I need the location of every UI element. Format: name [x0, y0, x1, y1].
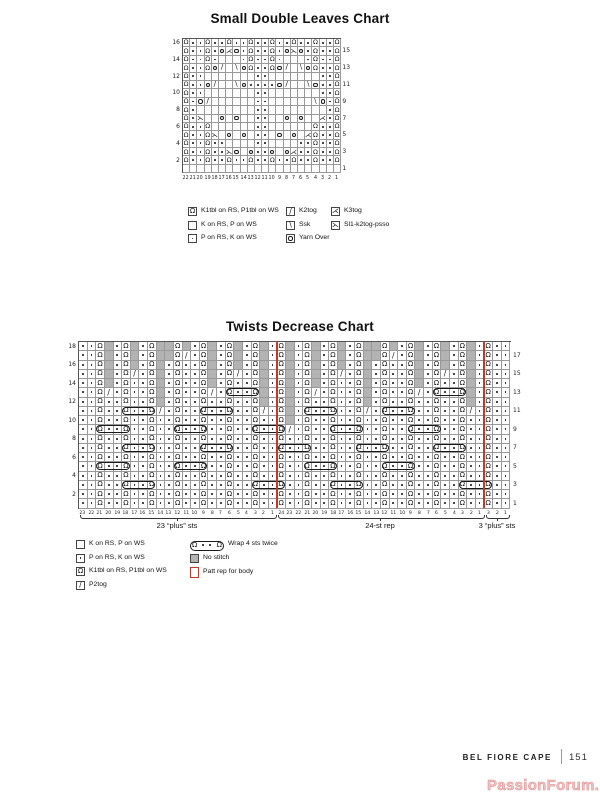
purl-dot-symbol [323, 364, 325, 366]
purl-dot-symbol [246, 456, 248, 458]
purl-dot-symbol [246, 502, 248, 504]
yarn-over-symbol [242, 133, 246, 137]
k1tbl-symbol: Ω [184, 81, 189, 87]
purl-dot-symbol [367, 438, 369, 440]
pattern-repeat-line [276, 341, 278, 508]
chart-cell [255, 148, 262, 156]
column-number: 19 [204, 176, 211, 181]
column-number: 5 [304, 176, 311, 181]
legend-item: \Ssk [286, 221, 310, 230]
chart-cell [219, 165, 226, 173]
purl-dot-symbol [211, 493, 213, 495]
chart-cell [212, 165, 219, 173]
k1tbl-symbol: Ω [201, 454, 206, 461]
chart-cell [372, 453, 381, 462]
purl-dot-symbol [496, 493, 498, 495]
chart-cell: Ω [433, 407, 442, 416]
wrap-4-sts-symbol [330, 481, 363, 489]
chart-cell [217, 342, 226, 351]
chart-cell [441, 379, 450, 388]
yarn-over-symbol [277, 83, 281, 87]
purl-dot-symbol [323, 345, 325, 347]
chart-cell: Ω [303, 499, 312, 508]
purl-dot-symbol [479, 419, 481, 421]
k1tbl-symbol: Ω [175, 343, 180, 350]
purl-dot-symbol [479, 345, 481, 347]
chart-cell [441, 425, 450, 434]
legend-label: P2tog [89, 582, 107, 589]
k1tbl-symbol: Ω [175, 500, 180, 507]
legend-label: Ssk [299, 222, 310, 229]
chart-cell: Ω [200, 388, 209, 397]
chart-cell: \ [312, 98, 319, 106]
purl-dot-symbol [322, 134, 324, 136]
k1tbl-symbol: Ω [149, 398, 154, 405]
chart-cell [286, 416, 295, 425]
purl-dot-symbol [237, 419, 239, 421]
chart-cell [415, 453, 424, 462]
chart-cell [243, 462, 252, 471]
purl-dot-symbol [82, 428, 84, 430]
k1tbl-symbol: Ω [227, 454, 232, 461]
chart-cell [502, 490, 511, 499]
purl-dot-symbol [401, 502, 403, 504]
purl-dot-symbol [116, 447, 118, 449]
k1tbl-symbol: Ω [408, 472, 413, 479]
chart-cell [327, 56, 334, 64]
chart-cell [291, 131, 298, 139]
chart-cell: Ω [407, 435, 416, 444]
row-number-left: 4 [168, 141, 180, 147]
chart-cell [415, 435, 424, 444]
k1tbl-symbol: Ω [434, 352, 439, 359]
purl-dot-symbol [116, 373, 118, 375]
k1tbl-symbol: Ω [330, 472, 335, 479]
chart-cell [467, 472, 476, 481]
chart-cell: Ω [148, 425, 157, 434]
k1tbl-symbol: Ω [460, 426, 465, 433]
purl-dot-symbol [116, 484, 118, 486]
k1tbl-symbol: Ω [335, 140, 340, 146]
chart-cell: / [131, 370, 140, 379]
chart-cell: Ω [277, 453, 286, 462]
purl-dot-symbol [91, 419, 93, 421]
purl-dot-symbol [246, 419, 248, 421]
purl-dot-symbol [349, 401, 351, 403]
chart-cell [79, 435, 88, 444]
purl-dot-symbol [323, 438, 325, 440]
purl-dot-symbol [257, 109, 259, 111]
k1tbl-symbol: Ω [304, 389, 309, 396]
k1tbl-symbol: Ω [201, 389, 206, 396]
purl-dot-symbol [300, 42, 302, 44]
k3tog-symbol: ⋌ [226, 48, 233, 55]
chart-cell: Ω [200, 351, 209, 360]
purl-dot-symbol [246, 465, 248, 467]
legend-symbol-swatch [76, 540, 85, 549]
k1tbl-symbol: Ω [330, 361, 335, 368]
purl-dot-symbol [142, 419, 144, 421]
purl-dot-symbol [91, 345, 93, 347]
chart-cell [276, 39, 283, 47]
purl-dot-symbol [470, 438, 472, 440]
chart-cell [79, 416, 88, 425]
purl-dot-symbol [323, 475, 325, 477]
chart-cell [260, 416, 269, 425]
chart-cell [139, 398, 148, 407]
chart-cell: Ω [303, 425, 312, 434]
chart-cell [88, 388, 97, 397]
k1tbl-symbol: Ω [253, 435, 258, 442]
chart-cell [298, 81, 305, 89]
purl-dot-symbol [298, 465, 300, 467]
chart-cell [219, 115, 226, 123]
chart-cell: Ω [484, 370, 493, 379]
k1tbl-symbol: Ω [291, 157, 296, 163]
purl-dot-symbol [168, 475, 170, 477]
purl-dot-symbol [453, 373, 455, 375]
chart-cell [321, 481, 330, 490]
wrap-4-sts-symbol [200, 444, 233, 452]
purl-dot-symbol [444, 382, 446, 384]
chart-cell [217, 361, 226, 370]
chart-cell: Ω [205, 56, 212, 64]
k1tbl-symbol: Ω [486, 472, 491, 479]
k1tbl-symbol: Ω [356, 398, 361, 405]
chart-cell: Ω [200, 481, 209, 490]
chart-cell: Ω [312, 64, 319, 72]
purl-dot-symbol [116, 345, 118, 347]
purl-dot-symbol [82, 401, 84, 403]
purl-dot-symbol [289, 493, 291, 495]
chart-cell: Ω [381, 425, 390, 434]
chart-cell: Ω [96, 453, 105, 462]
chart-cell [502, 472, 511, 481]
chart-cell [298, 98, 305, 106]
chart-cell [372, 472, 381, 481]
k1tbl-symbol: Ω [253, 472, 258, 479]
purl-dot-symbol [134, 391, 136, 393]
chart-cell [450, 425, 459, 434]
k1tbl-symbol: Ω [149, 370, 154, 377]
chart-cell [165, 435, 174, 444]
purl-dot-symbol [91, 391, 93, 393]
chart-cell [364, 453, 373, 462]
k1tbl-symbol: Ω [149, 463, 154, 470]
row-number-right: 7 [513, 445, 525, 451]
chart-cell [327, 140, 334, 148]
chart-cell: Ω [381, 416, 390, 425]
purl-dot-symbol [298, 493, 300, 495]
chart-cell [291, 123, 298, 131]
purl-dot-symbol [194, 354, 196, 356]
k1tbl-symbol: Ω [356, 435, 361, 442]
chart-cell [276, 123, 283, 131]
chart-cell: Ω [355, 435, 364, 444]
chart-cell: Ω [148, 453, 157, 462]
section-label-rep: 24-st rep [330, 522, 430, 530]
purl-dot-symbol [349, 493, 351, 495]
purl-dot-symbol [237, 475, 239, 477]
purl-dot-symbol [192, 109, 194, 111]
purl-dot-symbol [257, 101, 259, 103]
k1tbl-symbol: Ω [335, 90, 340, 96]
purl-dot-symbol [298, 345, 300, 347]
chart-cell [398, 370, 407, 379]
purl-dot-symbol [322, 151, 324, 153]
purl-dot-symbol [192, 59, 194, 61]
chart-cell [262, 140, 269, 148]
purl-dot-symbol [505, 502, 507, 504]
chart-cell [364, 472, 373, 481]
purl-dot-symbol [392, 456, 394, 458]
k1tbl-symbol: Ω [97, 361, 102, 368]
chart-cell [79, 472, 88, 481]
chart-cell: Ω [148, 490, 157, 499]
chart-cell [234, 435, 243, 444]
chart-cell [233, 98, 240, 106]
chart-cell [190, 47, 197, 55]
chart-cell [305, 115, 312, 123]
chart-cell: Ω [277, 462, 286, 471]
purl-dot-symbol [160, 447, 162, 449]
purl-dot-symbol [108, 456, 110, 458]
purl-dot-symbol [329, 134, 331, 136]
k1tbl-symbol: Ω [335, 107, 340, 113]
chart-cell [441, 499, 450, 508]
purl-dot-symbol [246, 493, 248, 495]
row-number-left: 6 [64, 455, 76, 461]
purl-dot-symbol [505, 475, 507, 477]
chart-cell [312, 361, 321, 370]
purl-dot-symbol [194, 484, 196, 486]
chart-cell [183, 490, 192, 499]
chart-cell [298, 89, 305, 97]
purl-dot-symbol [505, 493, 507, 495]
chart-cell [183, 481, 192, 490]
chart-cell [88, 416, 97, 425]
chart-cell: / [260, 407, 269, 416]
purl-dot-symbol [116, 391, 118, 393]
chart-cell [502, 379, 511, 388]
k1tbl-symbol: Ω [270, 48, 275, 54]
purl-dot-symbol [108, 419, 110, 421]
k1tbl-symbol: Ω [434, 481, 439, 488]
chart-cell: Ω [407, 490, 416, 499]
chart-cell [415, 398, 424, 407]
purl-dot-symbol [298, 410, 300, 412]
chart-cell: Ω [303, 379, 312, 388]
chart-cell [298, 165, 305, 173]
chart-cell [320, 165, 327, 173]
chart-cell [131, 435, 140, 444]
chart-cell [286, 407, 295, 416]
purl-dot-symbol [298, 391, 300, 393]
k3tog-symbol: ⋌ [291, 149, 298, 156]
yarn-over-symbol [277, 133, 281, 137]
chart-cell [79, 453, 88, 462]
purl-dot-symbol [427, 382, 429, 384]
row-number-right: 13 [513, 390, 525, 396]
purl-dot-symbol [349, 419, 351, 421]
k2tog-symbol: / [289, 426, 292, 434]
purl-dot-symbol [453, 382, 455, 384]
purl-dot-symbol [505, 465, 507, 467]
purl-dot-symbol [367, 502, 369, 504]
chart-cell: Ω [381, 361, 390, 370]
chart-cell [424, 370, 433, 379]
chart-cell [502, 462, 511, 471]
chart-cell [226, 123, 233, 131]
row-number-right: 3 [342, 149, 354, 155]
chart-cell [415, 462, 424, 471]
k1tbl-symbol: Ω [253, 370, 258, 377]
chart-cell [269, 73, 276, 81]
yarn-over-symbol [234, 150, 238, 154]
k1tbl-symbol: Ω [175, 398, 180, 405]
chart-cell [233, 156, 240, 164]
chart-cell [450, 361, 459, 370]
chart-cell [260, 462, 269, 471]
chart-cell [321, 499, 330, 508]
chart-cell [424, 490, 433, 499]
chart-cell [219, 98, 226, 106]
chart-cell [191, 481, 200, 490]
k1tbl-symbol: Ω [227, 361, 232, 368]
chart-cell: Ω [200, 370, 209, 379]
purl-dot-symbol [323, 484, 325, 486]
purl-dot-symbol [427, 456, 429, 458]
k2tog-symbol: / [444, 370, 447, 378]
chart-cell [269, 165, 276, 173]
purl-dot-symbol [168, 484, 170, 486]
yarn-over-symbol [288, 236, 292, 240]
purl-dot-symbol [168, 364, 170, 366]
wrap-4-sts-symbol [122, 444, 155, 452]
chart-cell [502, 398, 511, 407]
chart-cell [88, 444, 97, 453]
chart-cell: Ω [122, 416, 131, 425]
purl-dot-symbol [298, 428, 300, 430]
purl-dot-symbol [82, 373, 84, 375]
chart-cell: Ω [459, 379, 468, 388]
chart-cell: Ω [484, 398, 493, 407]
chart-cell: Ω [148, 499, 157, 508]
k1tbl-symbol: Ω [184, 90, 189, 96]
chart-cell [493, 342, 502, 351]
k1tbl-symbol: Ω [201, 343, 206, 350]
chart-row: ΩΩΩΩΩΩΩΩΩΩΩΩΩΩΩΩ [79, 342, 511, 351]
chart-cell [327, 64, 334, 72]
k1tbl-symbol: Ω [205, 132, 210, 138]
purl-dot-symbol [329, 50, 331, 52]
k1tbl-symbol: Ω [382, 491, 387, 498]
k2tog-symbol: / [206, 98, 208, 105]
purl-dot-symbol [168, 382, 170, 384]
purl-dot-symbol [444, 502, 446, 504]
purl-dot-symbol [341, 502, 343, 504]
purl-dot-symbol [142, 438, 144, 440]
chart-cell [450, 370, 459, 379]
chart-cell [197, 47, 204, 55]
purl-dot-symbol [91, 382, 93, 384]
chart-cell [305, 64, 312, 72]
chart-cell [338, 407, 347, 416]
k1tbl-symbol: Ω [335, 73, 340, 79]
k1tbl-symbol: Ω [313, 157, 318, 163]
chart-cell [191, 453, 200, 462]
chart-cell [398, 481, 407, 490]
purl-dot-symbol [108, 438, 110, 440]
chart-cell: Ω [205, 140, 212, 148]
chart-cell [131, 499, 140, 508]
chart-cell [248, 140, 255, 148]
chart-cell [208, 416, 217, 425]
chart-cell [88, 370, 97, 379]
chart-cell [502, 388, 511, 397]
k1tbl-symbol: Ω [270, 157, 275, 163]
chart-cell [269, 131, 276, 139]
purl-dot-symbol [444, 428, 446, 430]
k1tbl-symbol: Ω [356, 417, 361, 424]
purl-dot-symbol [289, 502, 291, 504]
purl-dot-symbol [307, 42, 309, 44]
purl-dot-symbol [375, 382, 377, 384]
chart-cell [327, 131, 334, 139]
purl-dot-symbol [116, 475, 118, 477]
k1tbl-symbol: Ω [248, 65, 253, 71]
purl-dot-symbol [272, 493, 274, 495]
purl-dot-symbol [444, 401, 446, 403]
chart-cell [183, 453, 192, 462]
purl-dot-symbol [264, 134, 266, 136]
chart-cell [248, 98, 255, 106]
chart-cell [248, 131, 255, 139]
chart-cell [79, 462, 88, 471]
chart-cell [269, 115, 276, 123]
purl-dot-symbol [427, 410, 429, 412]
purl-dot-symbol [220, 502, 222, 504]
k1tbl-symbol: Ω [330, 500, 335, 507]
wrap-symbol [190, 541, 224, 551]
chart-cell [190, 98, 197, 106]
purl-dot-symbol [375, 391, 377, 393]
chart-cell: Ω [433, 361, 442, 370]
chart-cell [208, 499, 217, 508]
chart-cell [212, 98, 219, 106]
purl-dot-symbol [237, 447, 239, 449]
chart-cell [346, 499, 355, 508]
chart-cell [114, 361, 123, 370]
chart-cell [114, 370, 123, 379]
chart-cell [502, 453, 511, 462]
chart-cell [165, 407, 174, 416]
chart-cell [372, 398, 381, 407]
chart-cell: Ω [355, 379, 364, 388]
purl-dot-symbol [401, 354, 403, 356]
chart-cell [415, 416, 424, 425]
purl-dot-symbol [91, 428, 93, 430]
purl-dot-symbol [349, 447, 351, 449]
row-number-right: 9 [513, 427, 525, 433]
chart-cell [372, 462, 381, 471]
chart-cell [79, 490, 88, 499]
chart-cell [190, 39, 197, 47]
wrap-4-sts-symbol [382, 462, 415, 470]
chart-cell [295, 499, 304, 508]
purl-dot-symbol [185, 391, 187, 393]
row-number-right: 5 [513, 464, 525, 470]
